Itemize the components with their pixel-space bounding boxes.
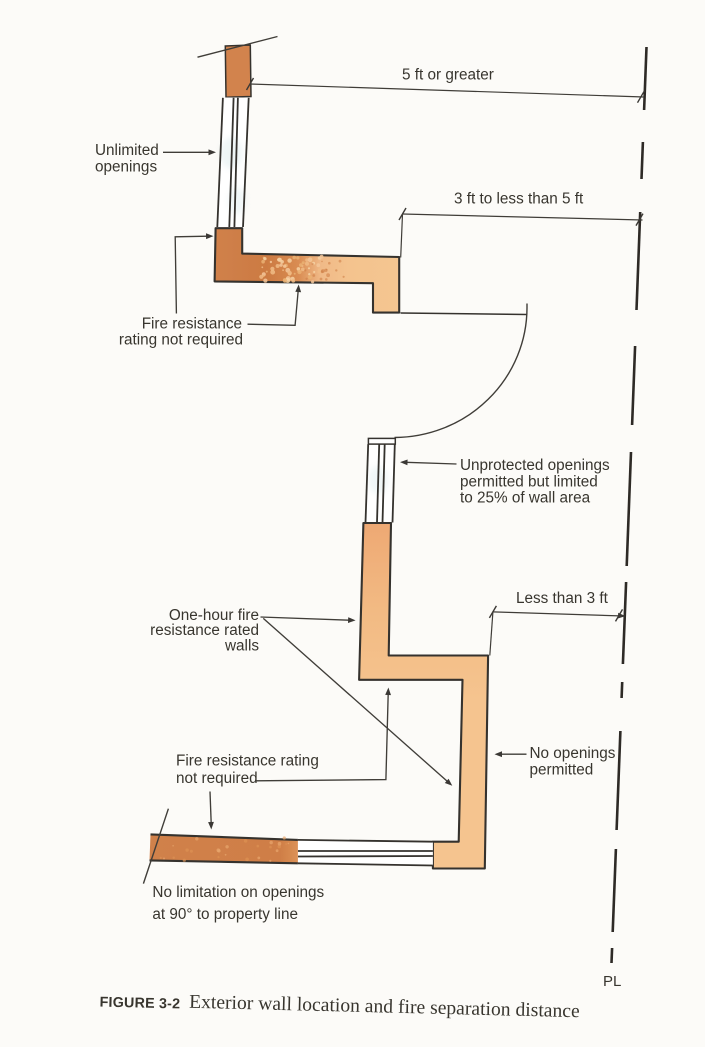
svg-text:resistance rated: resistance rated [150, 622, 259, 639]
svg-text:Less than 3 ft: Less than 3 ft [516, 590, 609, 607]
svg-text:3 ft to less than 5 ft: 3 ft to less than 5 ft [454, 191, 584, 208]
svg-text:No limitation on openings: No limitation on openings [152, 884, 324, 901]
svg-text:5 ft or greater: 5 ft or greater [402, 67, 494, 84]
svg-text:to 25% of wall area: to 25% of wall area [460, 489, 591, 506]
svg-text:FIGURE 3-2: FIGURE 3-2 [99, 995, 180, 1013]
svg-text:Unprotected openings: Unprotected openings [460, 457, 610, 474]
svg-text:openings: openings [95, 159, 157, 176]
svg-text:at 90° to property line: at 90° to property line [152, 906, 298, 923]
svg-text:not required: not required [176, 770, 258, 787]
svg-text:PL: PL [603, 973, 621, 990]
svg-text:permitted: permitted [530, 762, 594, 779]
svg-text:walls: walls [224, 638, 259, 655]
svg-text:rating not required: rating not required [119, 332, 243, 349]
svg-text:Unlimited: Unlimited [95, 142, 159, 159]
svg-text:No openings: No openings [530, 745, 616, 762]
svg-text:Fire resistance: Fire resistance [142, 316, 242, 333]
svg-text:permitted but limited: permitted but limited [460, 473, 598, 490]
svg-text:Fire resistance rating: Fire resistance rating [176, 753, 319, 770]
